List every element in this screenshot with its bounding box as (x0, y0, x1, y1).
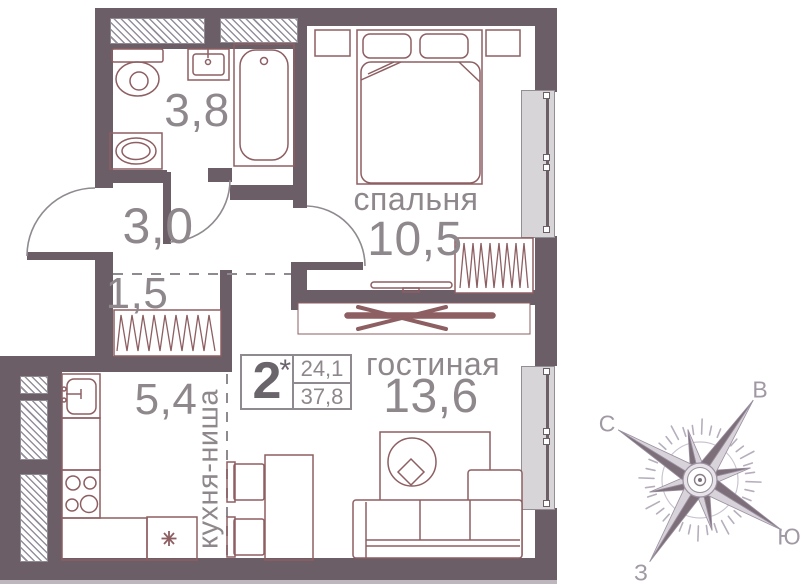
kitchen-area-label: 5,4 (135, 378, 198, 422)
vent-shaft-kitchen-1 (20, 376, 48, 394)
wall-bath-south-left (113, 170, 167, 183)
coffee-table (388, 438, 436, 486)
window-bedroom-hinge-top (543, 92, 550, 99)
bed (357, 30, 482, 184)
hall-area-label: 3,0 (122, 201, 193, 251)
vent-shaft-kitchen-2 (20, 400, 48, 460)
sink-icon (188, 49, 229, 80)
bathroom-area-label: 3,8 (164, 87, 229, 133)
compass-east-label: В (752, 377, 767, 404)
areas-cell: 24,1 37,8 (294, 356, 350, 408)
compass-north-label: С (599, 411, 616, 438)
window-living-hinge-bottom (543, 500, 550, 507)
living-area-value: 24,1 (294, 356, 350, 384)
wall-under-bathtub (230, 185, 307, 200)
entry-door-arc (27, 188, 95, 256)
vent-shaft-bathroom-left (110, 18, 205, 44)
living-area-label: 13,6 (383, 373, 478, 421)
bathtub-icon (234, 44, 294, 166)
wall-bedroom-south (293, 290, 557, 305)
window-bedroom-hinge-bottom (543, 226, 550, 233)
sofa (353, 470, 522, 558)
apartment-info-box: 2 * 24,1 37,8 (240, 354, 352, 410)
vent-shaft-kitchen-3 (20, 474, 48, 562)
window-living-hinge-top (543, 368, 550, 375)
kitchen-sink-icon (62, 374, 100, 418)
compass-rose (590, 360, 800, 584)
kitchen-counter (62, 418, 147, 560)
rooms-count-asterisk: * (279, 354, 291, 388)
wall-left-lower (0, 356, 18, 580)
rooms-count: 2 (253, 355, 282, 407)
chair-1 (227, 462, 264, 502)
rooms-count-cell: 2 * (242, 356, 294, 408)
nightstand-right (486, 30, 520, 56)
washing-machine-icon (110, 133, 162, 169)
wall-kitchen-top (0, 356, 232, 372)
window-bedroom-handle-2 (543, 164, 550, 171)
bedroom-name-label: спальня (354, 183, 479, 215)
stove-icon (62, 470, 100, 518)
nightstand-left (315, 30, 350, 56)
vent-shaft-bathroom-right (220, 18, 298, 43)
toilet-icon (112, 49, 163, 96)
wall-shaft-right (50, 372, 62, 580)
window-living-handle-1 (543, 428, 550, 435)
window-living-handle-2 (543, 438, 550, 445)
rug (380, 432, 490, 502)
chair-2 (227, 517, 264, 557)
compass-south-label: Ю (777, 524, 800, 551)
total-area-value: 37,8 (294, 384, 350, 410)
tv-stand-living (298, 303, 530, 334)
compass-west-label: З (634, 560, 648, 584)
wall-bottom-edge (0, 580, 557, 584)
wall-closet-right (220, 270, 232, 358)
wardrobe-bedroom (455, 238, 533, 293)
bedroom-door-leaf (307, 262, 363, 270)
kitchen-name-label: кухня-ниша (195, 389, 224, 549)
dashed-boundary-kitchen-niche (226, 374, 228, 558)
wall-right-upper (535, 8, 557, 92)
window-bedroom-handle-1 (543, 154, 550, 161)
dining-table (265, 455, 313, 560)
wall-vent-separator (205, 18, 220, 44)
closet-area-label: 1,5 (106, 272, 169, 316)
wall-bottom (0, 558, 557, 580)
fridge-icon (147, 517, 197, 560)
bedroom-area-label: 10,5 (367, 216, 462, 264)
floor-plan: 3,8 3,0 1,5 5,4 кухня-ниша спальня 10,5 … (0, 0, 800, 584)
wall-bath-south-right (208, 168, 232, 182)
entry-door-leaf (27, 252, 95, 260)
